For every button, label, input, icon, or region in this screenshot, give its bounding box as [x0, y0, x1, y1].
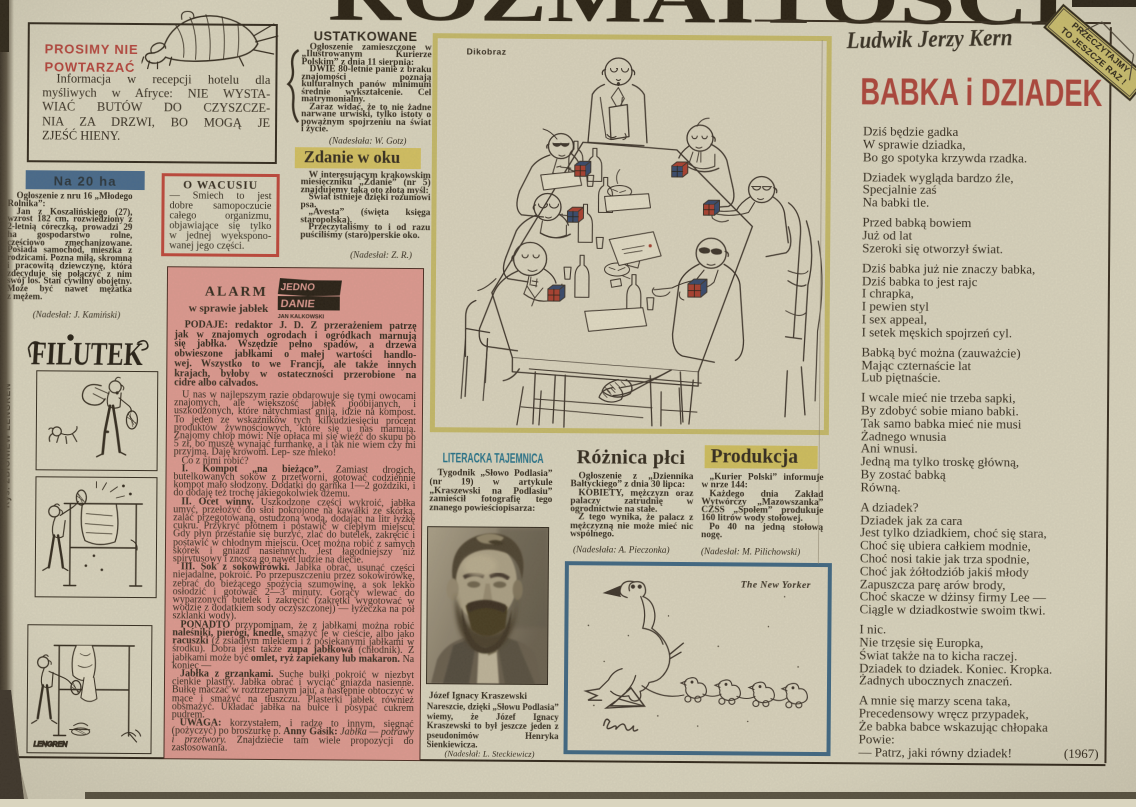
svg-text:LITERACKA TAJEMNICA: LITERACKA TAJEMNICA — [443, 450, 544, 466]
svg-text:BABKA i DZIADEK: BABKA i DZIADEK — [860, 72, 1103, 112]
svg-text:DANIE: DANIE — [280, 298, 316, 310]
svg-text:Ludwik Jerzy Kern: Ludwik Jerzy Kern — [845, 25, 1012, 54]
svg-text:FILUTEK: FILUTEK — [30, 336, 144, 371]
svg-text:JEDNO: JEDNO — [280, 282, 316, 293]
